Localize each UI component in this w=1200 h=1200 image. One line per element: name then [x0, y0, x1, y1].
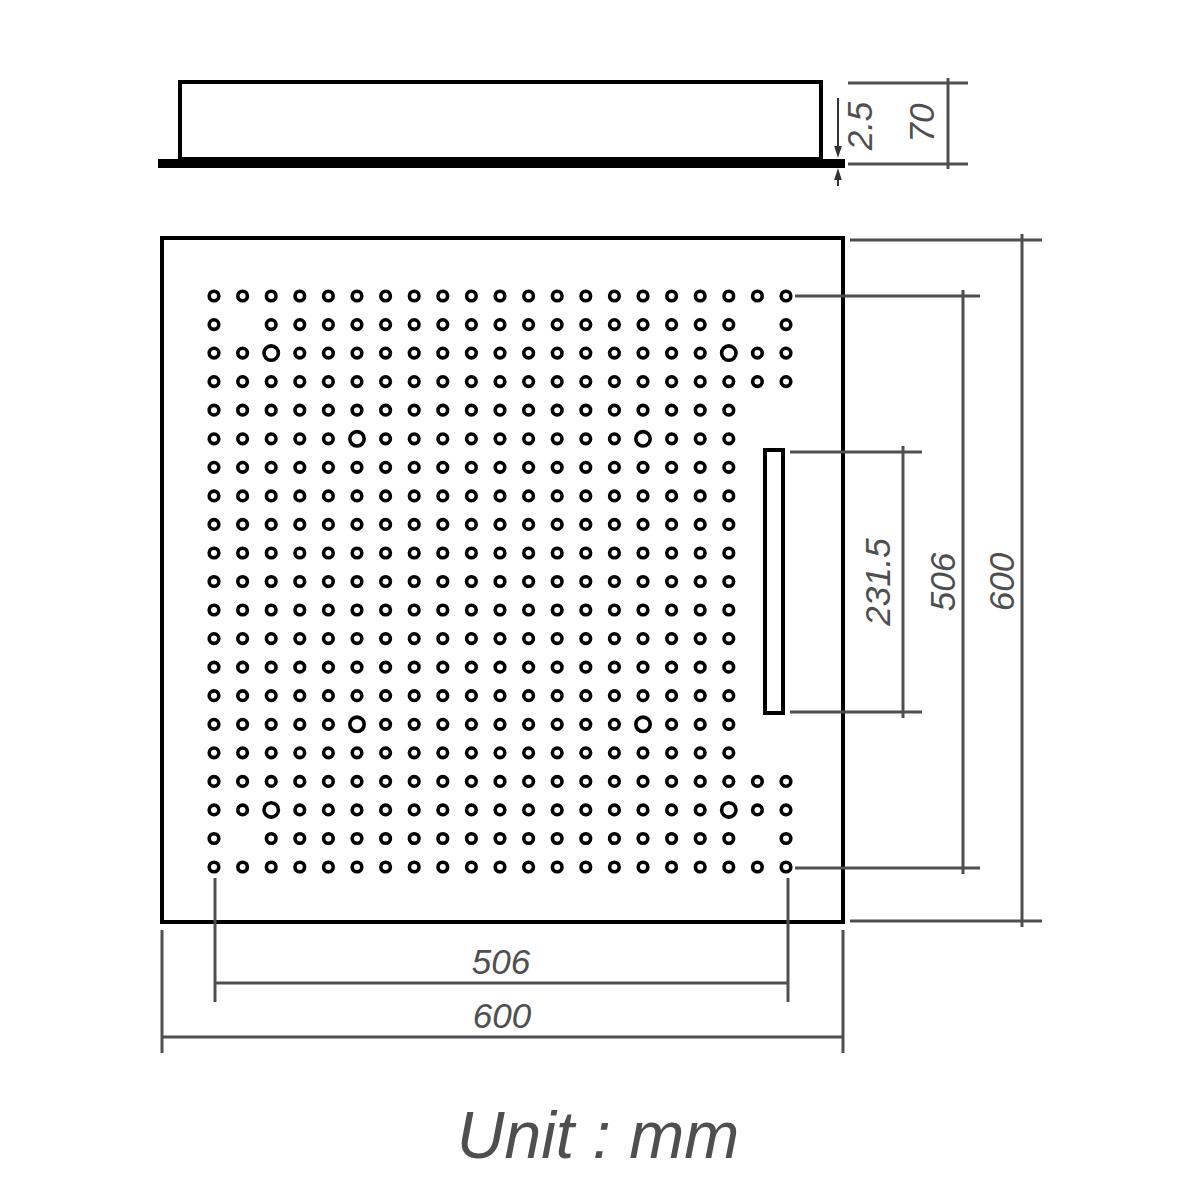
hole-field-height-label: 506 [923, 552, 962, 611]
hole-field-width-label: 506 [472, 942, 531, 981]
technical-drawing: 2.5 70 231.5 [0, 0, 1200, 1200]
plate-thickness-label: 2.5 [840, 101, 879, 151]
side-view-face-plate [158, 159, 845, 168]
panel-outline [162, 238, 843, 922]
overall-width-label: 600 [473, 996, 532, 1035]
front-view: 231.5 506 600 506 [162, 234, 1042, 1053]
side-view: 2.5 70 [158, 78, 968, 186]
overall-height-label: 600 [982, 552, 1021, 611]
arrow-up-icon [834, 168, 842, 180]
total-height-label: 70 [902, 103, 941, 142]
slot-length-label: 231.5 [858, 538, 897, 627]
dim-plate-thickness: 2.5 [834, 98, 879, 186]
unit-note: Unit : mm [457, 1098, 739, 1172]
waterfall-slot [765, 450, 783, 713]
drawing-page: 2.5 70 231.5 [0, 0, 1200, 1200]
side-view-body [180, 82, 821, 159]
